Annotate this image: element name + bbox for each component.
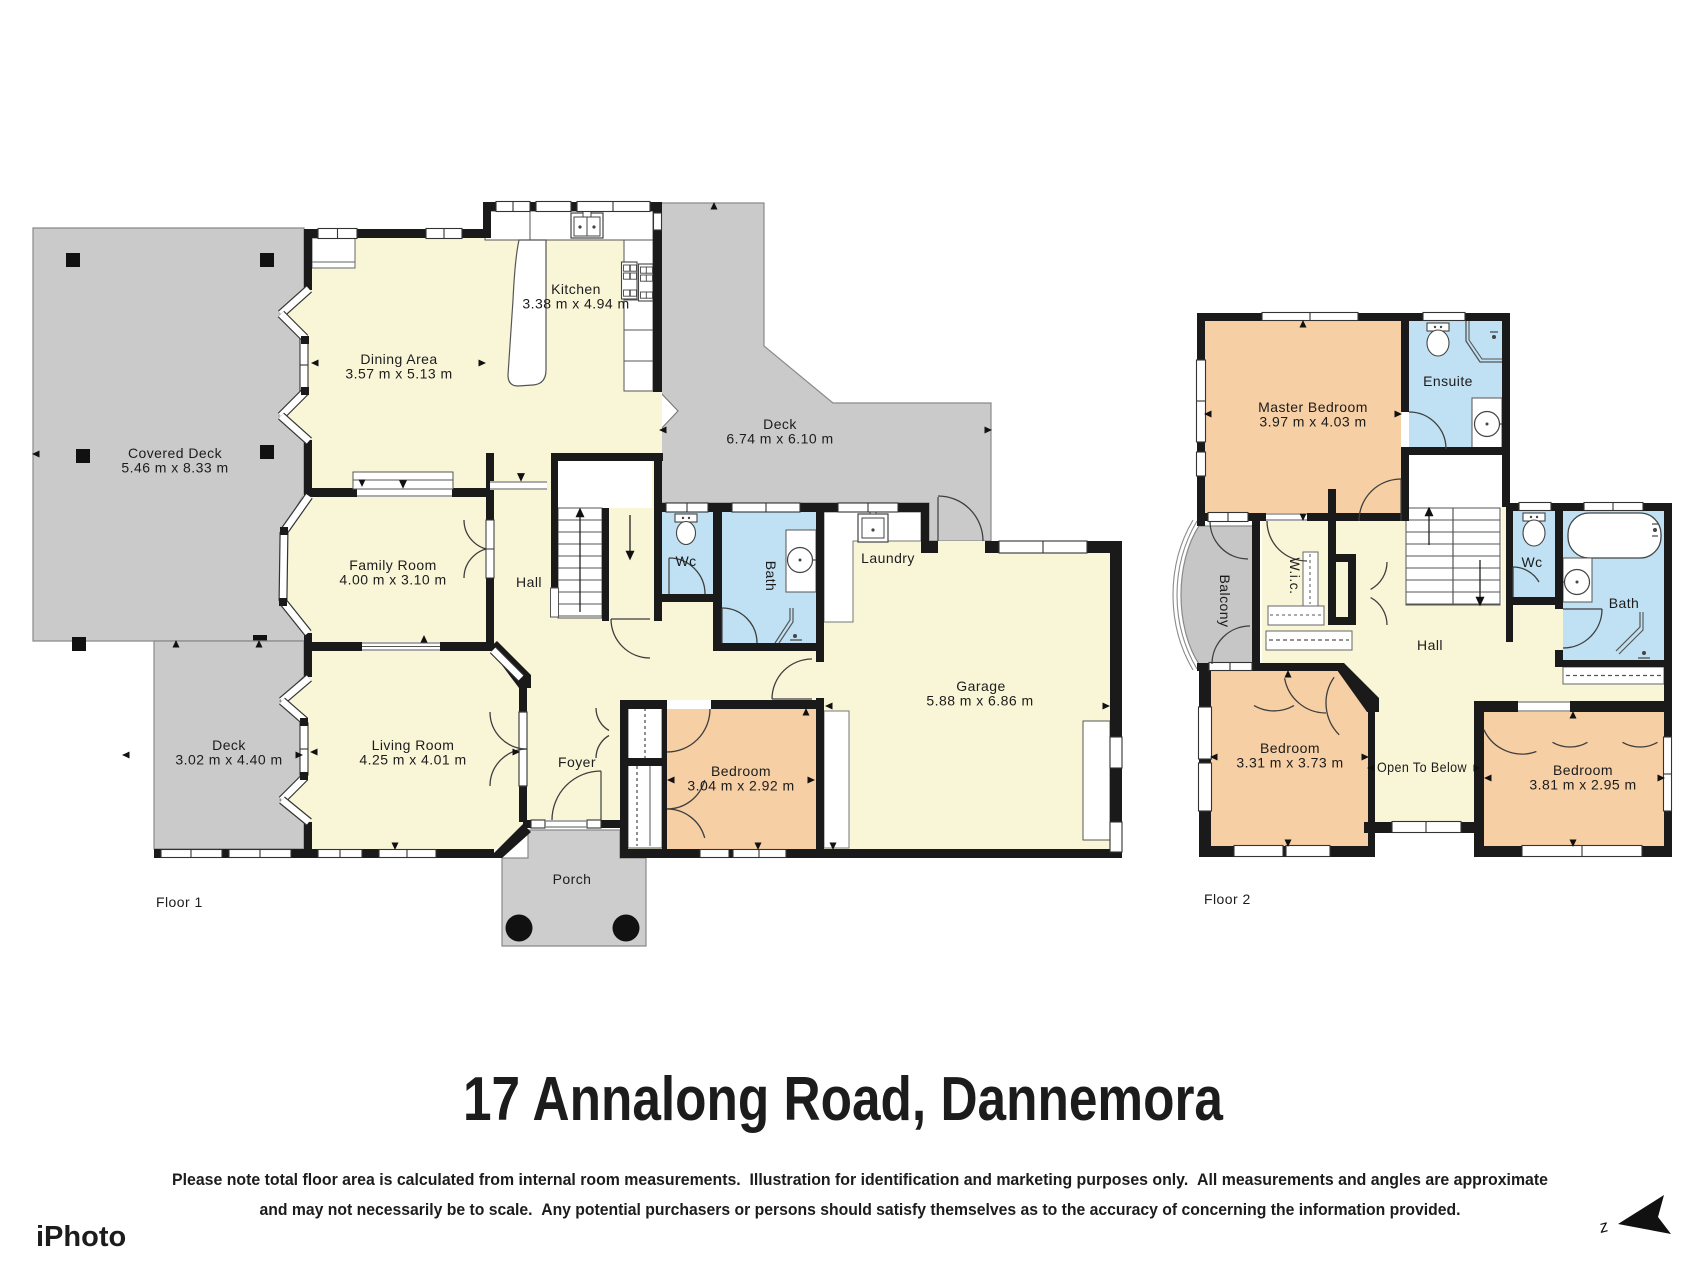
- svg-text:3.02 m x 4.40 m: 3.02 m x 4.40 m: [175, 752, 282, 768]
- svg-text:Hall: Hall: [516, 574, 542, 590]
- svg-text:Bath: Bath: [763, 561, 779, 592]
- svg-text:Open To Below: Open To Below: [1377, 759, 1467, 775]
- svg-text:Foyer: Foyer: [558, 754, 596, 770]
- svg-text:5.88 m x 6.86 m: 5.88 m x 6.86 m: [926, 693, 1033, 709]
- svg-text:3.04 m x 2.92 m: 3.04 m x 2.92 m: [687, 778, 794, 794]
- svg-text:3.31 m x 3.73 m: 3.31 m x 3.73 m: [1236, 755, 1343, 771]
- svg-text:4.25 m x 4.01 m: 4.25 m x 4.01 m: [359, 752, 466, 768]
- svg-text:3.97 m x 4.03 m: 3.97 m x 4.03 m: [1259, 414, 1366, 430]
- svg-text:Laundry: Laundry: [861, 550, 915, 566]
- svg-text:Wc: Wc: [675, 553, 696, 569]
- svg-text:6.74 m x 6.10 m: 6.74 m x 6.10 m: [726, 431, 833, 447]
- svg-text:4.00 m x 3.10 m: 4.00 m x 3.10 m: [339, 572, 446, 588]
- svg-text:Balcony: Balcony: [1217, 575, 1233, 628]
- svg-text:Hall: Hall: [1417, 637, 1443, 653]
- svg-text:W.i.c.: W.i.c.: [1287, 558, 1303, 595]
- svg-text:5.46 m x 8.33 m: 5.46 m x 8.33 m: [121, 460, 228, 476]
- svg-text:17 Annalong Road, Dannemora: 17 Annalong Road, Dannemora: [463, 1065, 1223, 1134]
- svg-text:Porch: Porch: [553, 871, 592, 887]
- svg-text:Bath: Bath: [1609, 595, 1640, 611]
- svg-text:Floor 2: Floor 2: [1204, 891, 1251, 907]
- svg-text:3.57 m x 5.13 m: 3.57 m x 5.13 m: [345, 366, 452, 382]
- svg-text:and may not necessarily be to: and may not necessarily be to scale. Any…: [260, 1201, 1461, 1219]
- svg-text:Wc: Wc: [1521, 554, 1542, 570]
- svg-text:3.81 m x 2.95 m: 3.81 m x 2.95 m: [1529, 777, 1636, 793]
- svg-text:3.38 m x 4.94 m: 3.38 m x 4.94 m: [522, 296, 629, 312]
- svg-text:iPhoto: iPhoto: [36, 1221, 126, 1253]
- svg-text:Please note total floor area i: Please note total floor area is calculat…: [172, 1171, 1548, 1189]
- svg-text:Ensuite: Ensuite: [1423, 373, 1473, 389]
- svg-text:Floor 1: Floor 1: [156, 894, 203, 910]
